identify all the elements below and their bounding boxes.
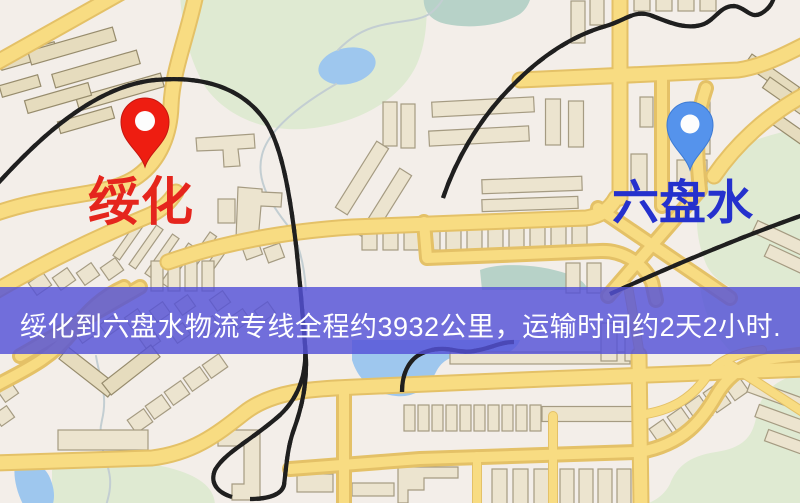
map-screenshot: 绥化 六盘水 绥化到六盘水物流专线全程约3932公里，运输时间约2天2小时. (0, 0, 800, 503)
map-canvas[interactable]: 绥化 六盘水 绥化到六盘水物流专线全程约3932公里，运输时间约2天2小时. (0, 0, 800, 503)
origin-pin-hole (135, 111, 155, 131)
route-banner: 绥化到六盘水物流专线全程约3932公里，运输时间约2天2小时. (0, 287, 800, 354)
route-banner-text: 绥化到六盘水物流专线全程约3932公里，运输时间约2天2小时. (20, 312, 781, 342)
origin-city-label: 绥化 (88, 174, 194, 232)
destination-city-label: 六盘水 (612, 178, 754, 230)
destination-pin-hole (681, 115, 700, 134)
